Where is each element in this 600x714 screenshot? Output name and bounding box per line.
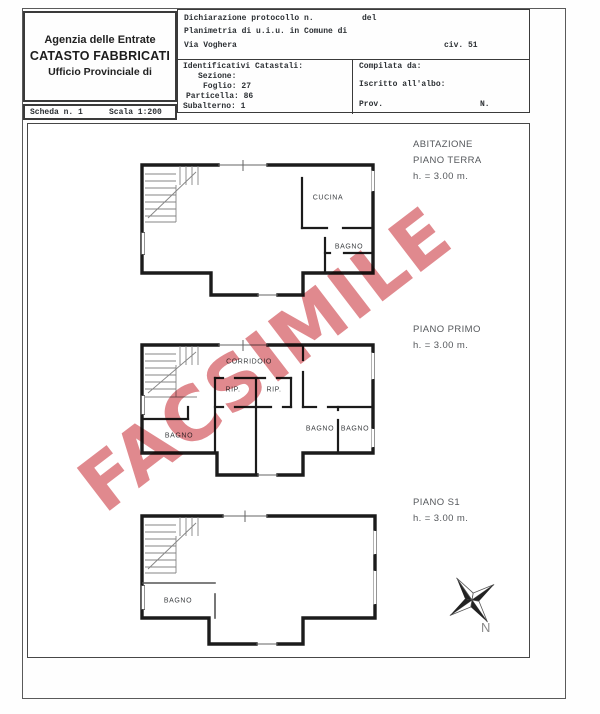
civic-number: civ. 51 bbox=[444, 41, 478, 50]
compass-north-label: N bbox=[481, 620, 491, 635]
scheda-box: Scheda n. 1 Scala 1:200 bbox=[23, 104, 177, 120]
declaration-box: Dichiarazione protocollo n. del Planimet… bbox=[177, 9, 530, 113]
catasto-title: CATASTO FABBRICATI bbox=[25, 49, 175, 63]
cadastral-floorplan-document: Agenzia delle Entrate CATASTO FABBRICATI… bbox=[0, 0, 600, 714]
compass-rose-icon bbox=[438, 566, 508, 636]
room-label-bagno-p1-right: BAGNO bbox=[341, 426, 369, 433]
foglio-field: Foglio: 27 bbox=[203, 82, 251, 91]
floor2-title-block: PIANO PRIMO h. = 3.00 m. bbox=[413, 322, 481, 353]
particella-field: Particella: 86 bbox=[186, 92, 253, 101]
protocol-del-label: del bbox=[362, 14, 376, 23]
scheda-number: Scheda n. 1 bbox=[30, 108, 83, 117]
declaration-row: Dichiarazione protocollo n. del Planimet… bbox=[178, 10, 529, 60]
cadastral-ids-title: Identificativi Catastali: bbox=[183, 62, 303, 71]
n-label: N. bbox=[480, 100, 490, 109]
floor2-title: PIANO PRIMO bbox=[413, 322, 481, 338]
sezione-field: Sezione: bbox=[198, 72, 236, 81]
floor3-title: PIANO S1 bbox=[413, 495, 468, 511]
floor1-title-line1: ABITAZIONE bbox=[413, 137, 482, 153]
street-label: Via Voghera bbox=[184, 41, 237, 50]
planimetria-label: Planimetria di u.i.u. in Comune di bbox=[184, 27, 347, 36]
cadastral-ids-cell: Identificativi Catastali: Sezione: Fogli… bbox=[178, 60, 353, 114]
iscritto-label: Iscritto all'albo: bbox=[359, 80, 445, 89]
compilata-label: Compilata da: bbox=[359, 62, 421, 71]
prov-label: Prov. bbox=[359, 100, 383, 109]
protocol-label: Dichiarazione protocollo n. bbox=[184, 14, 314, 23]
floor2-height: h. = 3.00 m. bbox=[413, 338, 481, 354]
floor3-title-block: PIANO S1 h. = 3.00 m. bbox=[413, 495, 468, 526]
room-label-bagno-s1: BAGNO bbox=[164, 598, 192, 605]
compiler-cell: Compilata da: Iscritto all'albo: Prov. N… bbox=[353, 60, 531, 114]
floor3-height: h. = 3.00 m. bbox=[413, 511, 468, 527]
scale-label: Scala 1:200 bbox=[109, 108, 162, 117]
agency-name: Agenzia delle Entrate bbox=[25, 34, 175, 46]
agency-header-box: Agenzia delle Entrate CATASTO FABBRICATI… bbox=[23, 11, 177, 102]
subalterno-field: Subalterno: 1 bbox=[183, 102, 245, 111]
floor-plan-piano-s1 bbox=[138, 510, 383, 650]
room-label-cucina: CUCINA bbox=[313, 195, 343, 202]
ufficio-line: Ufficio Provinciale di bbox=[25, 66, 175, 78]
room-label-bagno-p1-mid: BAGNO bbox=[306, 426, 334, 433]
